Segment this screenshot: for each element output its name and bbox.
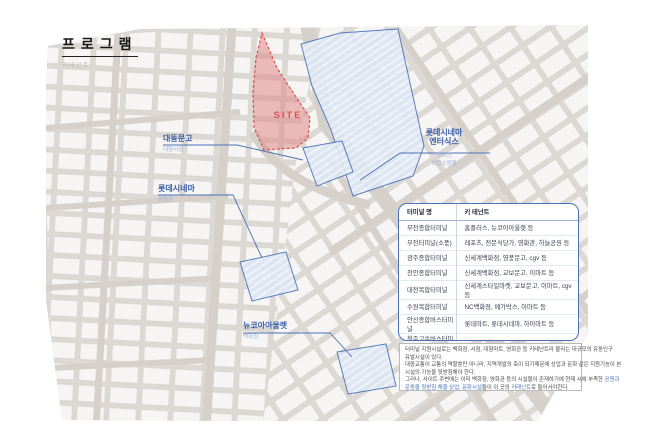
footnote-text: 유발시설이 있다. (405, 355, 443, 361)
map-label-entersix: 롯데시네마 엔터식스 영화관 복합쇼핑몰 (398, 128, 490, 168)
footnote-highlight: 운동을 뒷받침 해줄 상업, 문화시설 (405, 385, 482, 391)
label-sub: 영화관 복합쇼핑몰 (398, 153, 490, 168)
terminal-name-cell: 광주종합터미널 (399, 250, 456, 265)
label-name: 대동문고 (163, 134, 192, 143)
table-row: 부천종합터미널홈플러스, 뉴코아아울렛 등 (399, 220, 578, 235)
program-slide: 프로그램 키테넌트 SITE 대동문고 대형서점 롯데시네마 영화관 롯데시네마… (0, 0, 650, 433)
label-name: 뉴코아아울렛 (243, 321, 287, 330)
key-tenant-cell: 롯데마트, 롯데시네마, 하이마트 등 (456, 314, 578, 333)
col-key-tenant: 키 테넌트 (456, 204, 578, 220)
site-label: SITE (266, 110, 310, 121)
footnote-box: 터미널 지원시설로는 백화점, 서점, 대형마트, 영화관 등 키테넌트라 불리… (399, 343, 582, 391)
table-row: 천안종합터미널신세계백화점, 교보문고, 이마트 등 (399, 265, 578, 280)
page-title: 프로그램 (62, 34, 138, 57)
footnote-line: 터미널 지원시설로는 백화점, 서점, 대형마트, 영화관 등 키테넌트라 불리… (405, 347, 576, 355)
key-tenant-cell: 홈플러스, 뉴코아아울렛 등 (456, 220, 578, 235)
footnote-highlight: 키테넌트 (511, 385, 531, 391)
table-header-row: 터미널 명 키 테넌트 (399, 204, 578, 220)
table-row: 광주종합터미널신세계백화점, 영풍문고, cgv 등 (399, 250, 578, 265)
label-sub: 대형서점 (163, 147, 192, 154)
terminal-name-cell: 천안종합터미널 (399, 265, 456, 280)
page-subtitle: 키테넌트 (62, 61, 138, 69)
key-tenant-cell: 신세계백화점, 영풍문고, cgv 등 (456, 250, 578, 265)
col-terminal-name: 터미널 명 (399, 204, 456, 220)
table-row: 대전복합터미널신세계스타일마켓, 교보문고, 이마트, cgv 등 (399, 280, 578, 299)
key-tenant-cell: 신세계백화점, 교보문고, 이마트 등 (456, 265, 578, 280)
footnote-text: 들이 이 곳의 (482, 385, 511, 391)
key-tenant-cell: 신세계백화점, 교보문고, cgv 등 (456, 333, 578, 341)
table-row: 청주고속버스터미널신세계백화점, 교보문고, cgv 등 (399, 333, 578, 341)
title-block: 프로그램 키테넌트 (62, 34, 138, 69)
key-tenant-cell: 신세계스타일마켓, 교보문고, 이마트, cgv 등 (456, 280, 578, 299)
footnote-line: 운동을 뒷받침 해줄 상업, 문화시설들이 이 곳의 키테넌트로 들어서야한다. (405, 385, 576, 393)
footnote-text: 터미널 지원시설로는 백화점, 서점, 대형마트, 영화관 등 키테넌트라 불리… (405, 347, 613, 353)
label-sub: 영화관 (158, 197, 195, 204)
map-label-lotte-cinema: 롯데시네마 영화관 (158, 184, 195, 205)
footnote-text: 그러나, 사이트 주변에는 이미 백화점, 영화관 등의 시설물이 존재하기에 … (405, 377, 605, 383)
label-name: 롯데시네마 (158, 184, 195, 193)
map-label-daedong: 대동문고 대형서점 (163, 134, 192, 155)
table-row: 수원복합터미널NC백화점, 메가박스, 이마트 등 (399, 299, 578, 314)
tenant-table-body: 부천종합터미널홈플러스, 뉴코아아울렛 등부천터미널(소풍)레포츠, 전문식당가… (399, 220, 578, 341)
table-row: 부천터미널(소풍)레포츠, 전문식당가, 영화관, 하늘공원 등 (399, 235, 578, 250)
table-row: 안산종합버스터미널롯데마트, 롯데시네마, 하이마트 등 (399, 314, 578, 333)
terminal-name-cell: 청주고속버스터미널 (399, 333, 456, 341)
terminal-name-cell: 부천종합터미널 (399, 220, 456, 235)
map-label-newcore: 뉴코아아울렛 백화점 (243, 321, 287, 342)
label-name2: 엔터식스 (398, 137, 490, 146)
key-tenant-table: 터미널 명 키 테넌트 부천종합터미널홈플러스, 뉴코아아울렛 등부천터미널(소… (398, 203, 579, 341)
key-tenant-cell: NC백화점, 메가박스, 이마트 등 (456, 299, 578, 314)
label-name: 롯데시네마 (398, 128, 490, 137)
label-sub: 백화점 (243, 334, 287, 341)
newcore-building (337, 344, 396, 394)
footnote-highlight: 공원과 (605, 377, 620, 383)
footnote-line: 유발시설이 있다. (405, 355, 576, 363)
terminal-name-cell: 대전복합터미널 (399, 280, 456, 299)
terminal-name-cell: 부천터미널(소풍) (399, 235, 456, 250)
terminal-name-cell: 수원복합터미널 (399, 299, 456, 314)
footnote-text: 로 들어서야한다. (531, 385, 569, 391)
footnote-text: 시설의 기능을 뒷받침해야 한다. (405, 370, 475, 376)
key-tenant-cell: 레포츠, 전문식당가, 영화관, 하늘공원 등 (456, 235, 578, 250)
footnote-line: 대중교통이 교통의 역할뿐만 아니라, 지역개발의 축이 되기때문에 상업과 문… (405, 362, 576, 370)
footnote-text: 대중교통이 교통의 역할뿐만 아니라, 지역개발의 축이 되기때문에 상업과 문… (405, 362, 621, 368)
footnote-line: 그러나, 사이트 주변에는 이미 백화점, 영화관 등의 시설물이 존재하기에 … (405, 377, 576, 385)
terminal-name-cell: 안산종합버스터미널 (399, 314, 456, 333)
